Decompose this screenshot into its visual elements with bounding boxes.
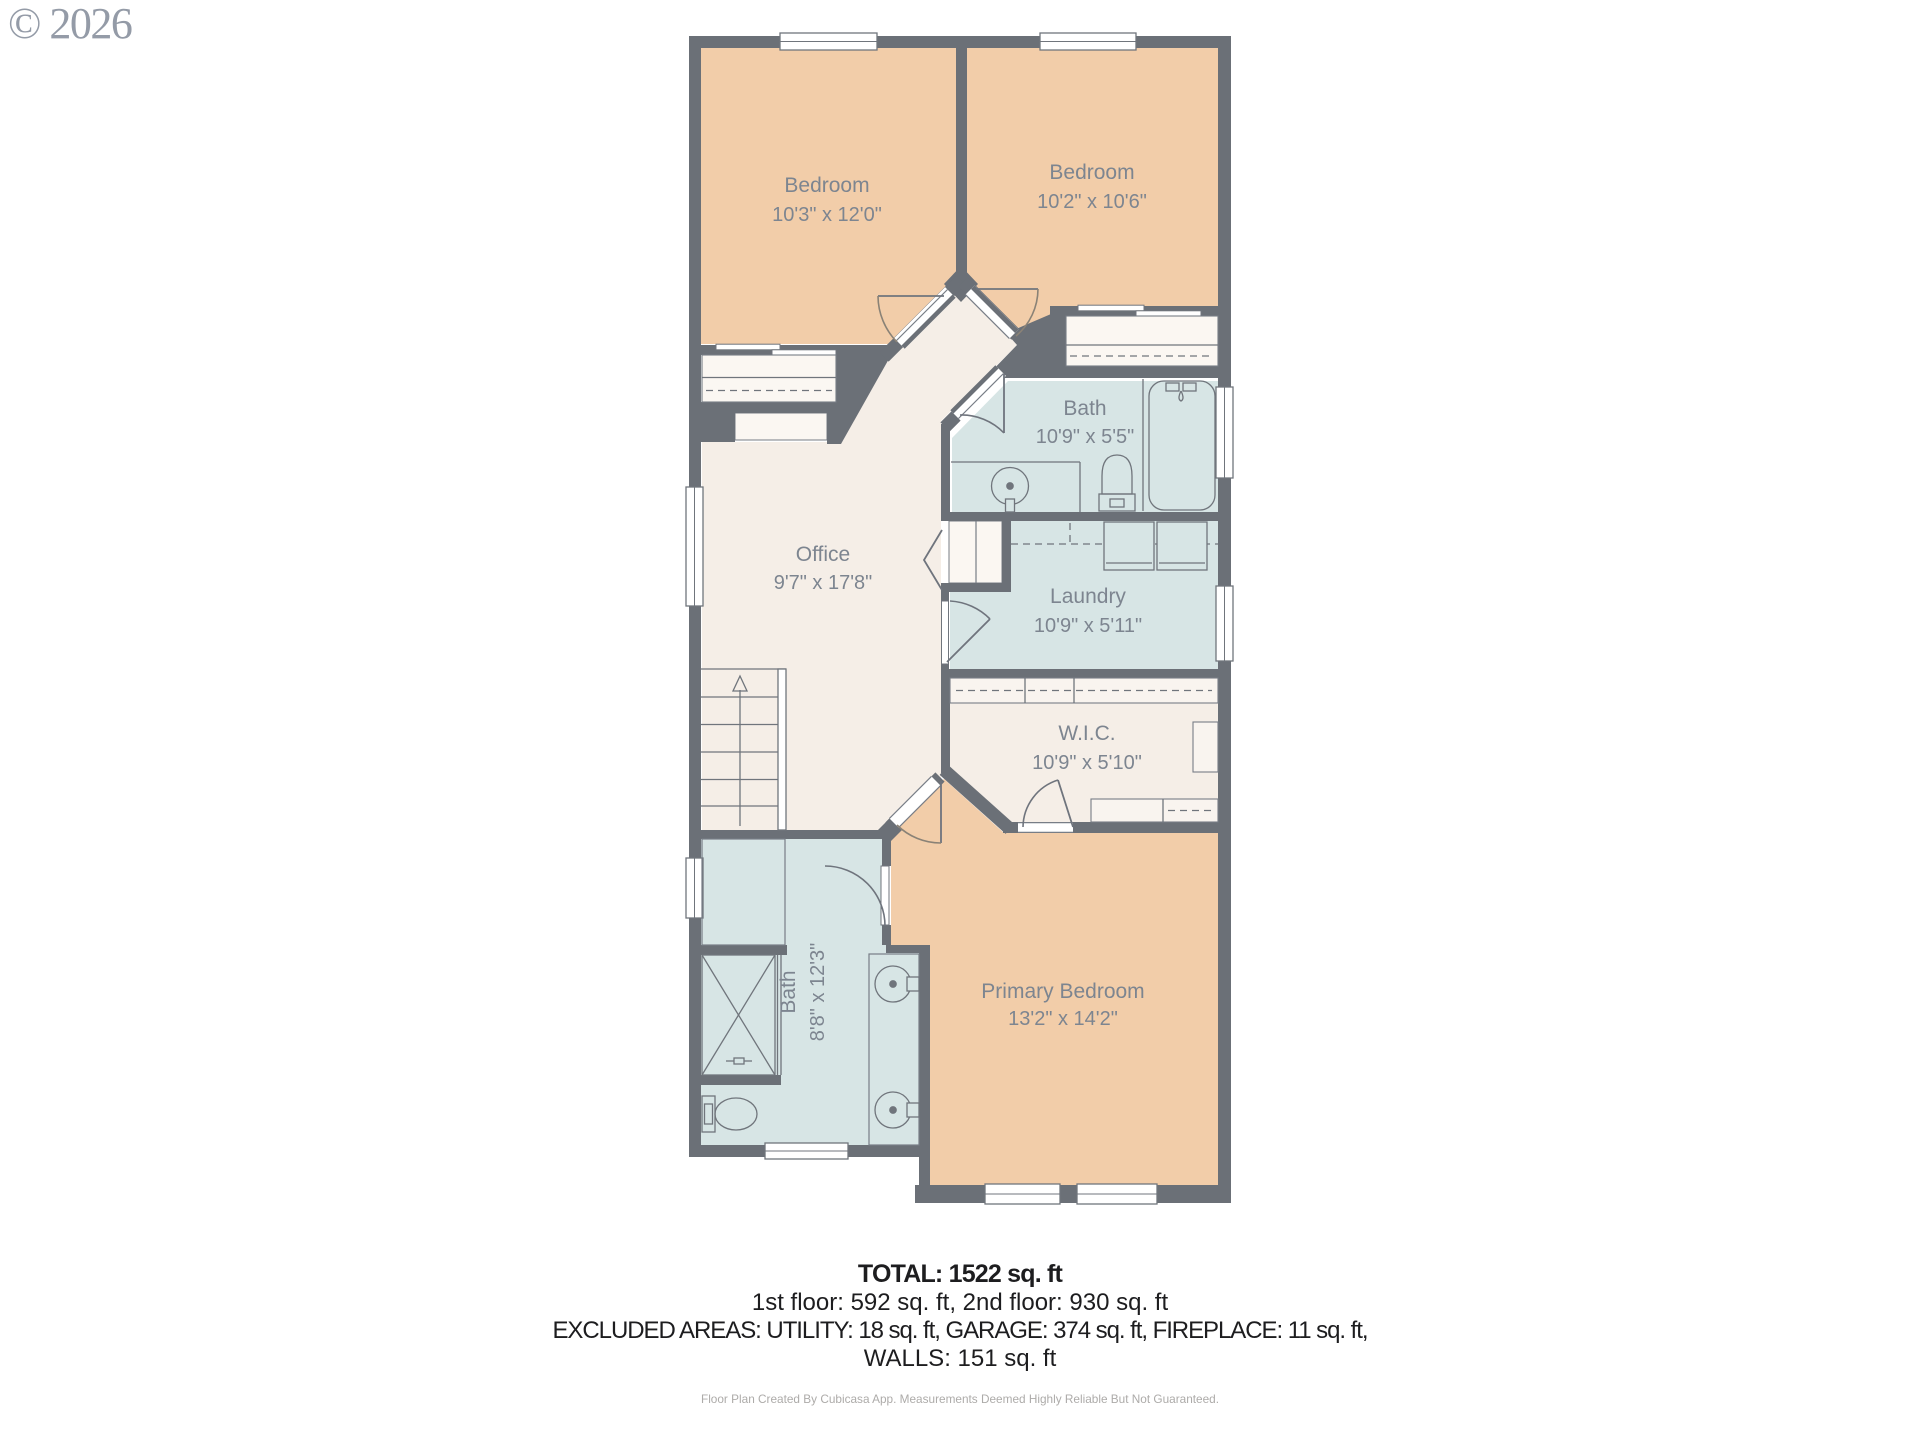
svg-text:Primary Bedroom: Primary Bedroom <box>981 980 1144 1003</box>
svg-text:10'9" x 5'5": 10'9" x 5'5" <box>1036 426 1135 448</box>
svg-text:10'2" x 10'6": 10'2" x 10'6" <box>1037 191 1147 213</box>
svg-text:Bedroom: Bedroom <box>1049 161 1134 184</box>
svg-text:8'8" x 12'3": 8'8" x 12'3" <box>807 943 829 1042</box>
svg-text:Bath: Bath <box>1063 397 1106 420</box>
svg-text:W.I.C.: W.I.C. <box>1058 722 1115 745</box>
svg-text:Bedroom: Bedroom <box>784 174 869 197</box>
svg-text:Office: Office <box>796 543 850 566</box>
svg-text:10'9" x 5'11": 10'9" x 5'11" <box>1034 615 1142 637</box>
svg-text:Laundry: Laundry <box>1050 585 1126 608</box>
svg-text:Bath: Bath <box>777 970 800 1013</box>
svg-text:13'2" x 14'2": 13'2" x 14'2" <box>1008 1008 1118 1030</box>
svg-text:9'7" x 17'8": 9'7" x 17'8" <box>774 572 873 594</box>
svg-text:10'3" x 12'0": 10'3" x 12'0" <box>772 204 882 226</box>
svg-text:10'9" x 5'10": 10'9" x 5'10" <box>1032 752 1142 774</box>
